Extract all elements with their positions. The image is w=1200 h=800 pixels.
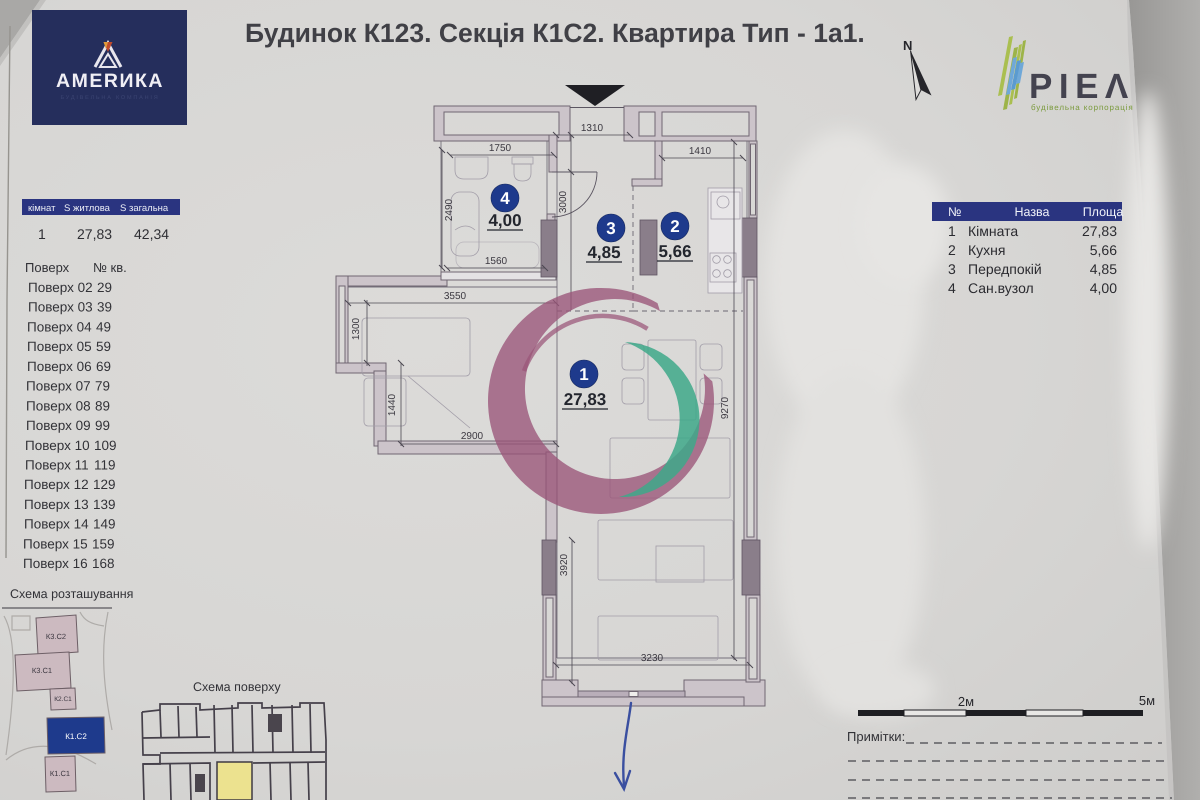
svg-text:99: 99 <box>95 418 110 433</box>
svg-text:119: 119 <box>94 458 116 473</box>
svg-text:5,66: 5,66 <box>1090 242 1117 258</box>
svg-text:Поверх: Поверх <box>25 260 70 275</box>
svg-text:59: 59 <box>96 339 111 354</box>
svg-text:5,66: 5,66 <box>658 242 691 261</box>
svg-text:К3.С1: К3.С1 <box>32 666 52 675</box>
svg-text:Поверх 08: Поверх 08 <box>26 398 91 413</box>
svg-text:будівельна корпорація: будівельна корпорація <box>1031 103 1134 112</box>
svg-text:АМЕRИКА: АМЕRИКА <box>56 70 164 92</box>
svg-text:29: 29 <box>97 280 112 295</box>
svg-text:1410: 1410 <box>689 146 712 157</box>
svg-text:139: 139 <box>93 497 116 512</box>
svg-text:159: 159 <box>92 536 115 551</box>
svg-text:2: 2 <box>670 217 679 236</box>
svg-text:2: 2 <box>948 242 956 258</box>
svg-text:2490: 2490 <box>444 198 455 221</box>
svg-text:168: 168 <box>92 556 115 571</box>
svg-text:Поверх 12: Поверх 12 <box>24 477 89 492</box>
svg-text:К2.С1: К2.С1 <box>54 696 72 703</box>
svg-text:Будинок К123. Секція К1С2. Ква: Будинок К123. Секція К1С2. Квартира Тип … <box>245 18 865 48</box>
svg-text:149: 149 <box>93 517 116 532</box>
svg-text:Назва: Назва <box>1014 205 1049 219</box>
svg-text:69: 69 <box>96 359 111 374</box>
svg-text:4: 4 <box>500 189 510 208</box>
svg-text:Поверх 05: Поверх 05 <box>27 339 92 354</box>
svg-text:27,83: 27,83 <box>564 390 607 409</box>
svg-text:Поверх 15: Поверх 15 <box>23 536 88 551</box>
svg-text:2м: 2м <box>958 694 974 709</box>
svg-text:К1.С1: К1.С1 <box>50 769 70 778</box>
svg-text:Кімната: Кімната <box>968 223 1018 239</box>
svg-text:Сан.вузол: Сан.вузол <box>968 280 1034 296</box>
svg-text:1440: 1440 <box>387 393 398 416</box>
svg-text:кімнат: кімнат <box>28 203 56 214</box>
svg-text:109: 109 <box>94 438 117 453</box>
svg-text:1750: 1750 <box>489 143 512 154</box>
svg-text:4: 4 <box>948 280 956 296</box>
svg-text:1300: 1300 <box>351 317 362 340</box>
svg-text:Схема поверху: Схема поверху <box>193 680 281 694</box>
svg-text:3230: 3230 <box>641 653 664 664</box>
svg-text:39: 39 <box>97 300 112 315</box>
svg-text:Поверх 13: Поверх 13 <box>24 497 89 512</box>
svg-text:129: 129 <box>93 477 116 492</box>
svg-text:Передпокій: Передпокій <box>968 261 1042 277</box>
svg-text:3: 3 <box>606 219 615 238</box>
svg-text:Поверх 07: Поверх 07 <box>26 379 91 394</box>
svg-text:Площа: Площа <box>1083 205 1124 219</box>
svg-text:РІЕΛ: РІЕΛ <box>1029 67 1135 106</box>
svg-text:Примітки:: Примітки: <box>847 729 905 744</box>
svg-text:42,34: 42,34 <box>134 226 169 242</box>
svg-text:БУДІВЕЛЬНА КОМПАНІЯ: БУДІВЕЛЬНА КОМПАНІЯ <box>60 95 159 101</box>
svg-text:3000: 3000 <box>558 190 569 213</box>
svg-text:4,00: 4,00 <box>1090 280 1117 296</box>
svg-text:4,85: 4,85 <box>1090 261 1117 277</box>
svg-text:Поверх 03: Поверх 03 <box>28 300 93 315</box>
svg-text:9270: 9270 <box>720 396 731 419</box>
svg-text:Кухня: Кухня <box>968 242 1005 258</box>
svg-text:S загальна: S загальна <box>120 203 169 214</box>
svg-text:№ кв.: № кв. <box>93 260 127 275</box>
svg-text:Поверх 14: Поверх 14 <box>24 517 89 532</box>
svg-text:89: 89 <box>95 398 110 413</box>
svg-text:3920: 3920 <box>559 553 570 576</box>
svg-text:Поверх 06: Поверх 06 <box>27 359 92 374</box>
svg-text:S житлова: S житлова <box>64 203 111 214</box>
svg-text:4,85: 4,85 <box>587 243 620 262</box>
svg-text:Поверх 04: Поверх 04 <box>27 319 92 334</box>
svg-text:1560: 1560 <box>485 256 508 267</box>
svg-text:49: 49 <box>96 319 111 334</box>
svg-text:1310: 1310 <box>581 123 604 134</box>
svg-text:К1.С2: К1.С2 <box>65 732 87 741</box>
svg-text:1: 1 <box>38 226 46 242</box>
svg-text:5м: 5м <box>1139 693 1155 708</box>
svg-text:1: 1 <box>948 223 956 239</box>
svg-text:№: № <box>948 205 961 219</box>
svg-text:1: 1 <box>579 365 588 384</box>
svg-text:Схема розташування: Схема розташування <box>10 587 133 601</box>
svg-text:3: 3 <box>948 261 956 277</box>
svg-text:2900: 2900 <box>461 431 484 442</box>
svg-text:3550: 3550 <box>444 291 467 302</box>
svg-text:79: 79 <box>95 379 110 394</box>
svg-text:27,83: 27,83 <box>1082 223 1117 239</box>
svg-text:Поверх 10: Поверх 10 <box>25 438 90 453</box>
svg-text:Поверх 09: Поверх 09 <box>26 418 91 433</box>
svg-text:Поверх 16: Поверх 16 <box>23 556 88 571</box>
svg-text:4,00: 4,00 <box>488 211 521 230</box>
svg-text:Поверх 11: Поверх 11 <box>25 458 89 473</box>
svg-text:27,83: 27,83 <box>77 226 112 242</box>
svg-text:Поверх 02: Поверх 02 <box>28 280 93 295</box>
svg-text:К3.С2: К3.С2 <box>46 632 66 641</box>
